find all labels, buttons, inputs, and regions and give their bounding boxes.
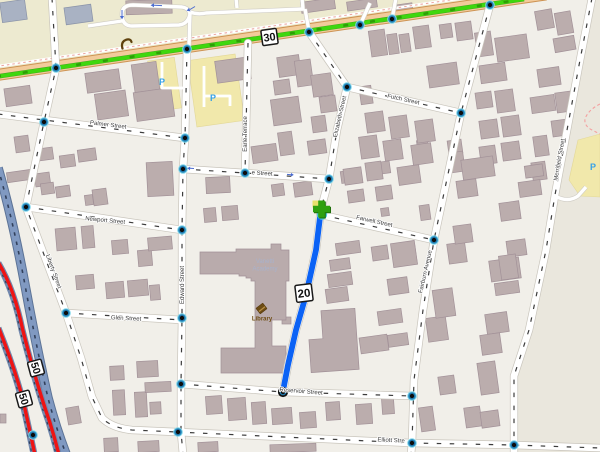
svg-text:20: 20 bbox=[297, 287, 311, 300]
svg-text:Edward Street: Edward Street bbox=[180, 266, 186, 304]
svg-text:Academy: Academy bbox=[252, 267, 277, 273]
svg-text:Library: Library bbox=[252, 317, 273, 323]
svg-text:P: P bbox=[210, 93, 216, 103]
svg-text:Vanetti: Vanetti bbox=[256, 259, 274, 265]
svg-text:P: P bbox=[159, 77, 165, 87]
svg-text:P: P bbox=[590, 162, 596, 172]
svg-text:Earle Terrace: Earle Terrace bbox=[243, 116, 249, 152]
svg-text:Elliott Stre: Elliott Stre bbox=[377, 437, 405, 444]
svg-text:30: 30 bbox=[263, 31, 277, 45]
